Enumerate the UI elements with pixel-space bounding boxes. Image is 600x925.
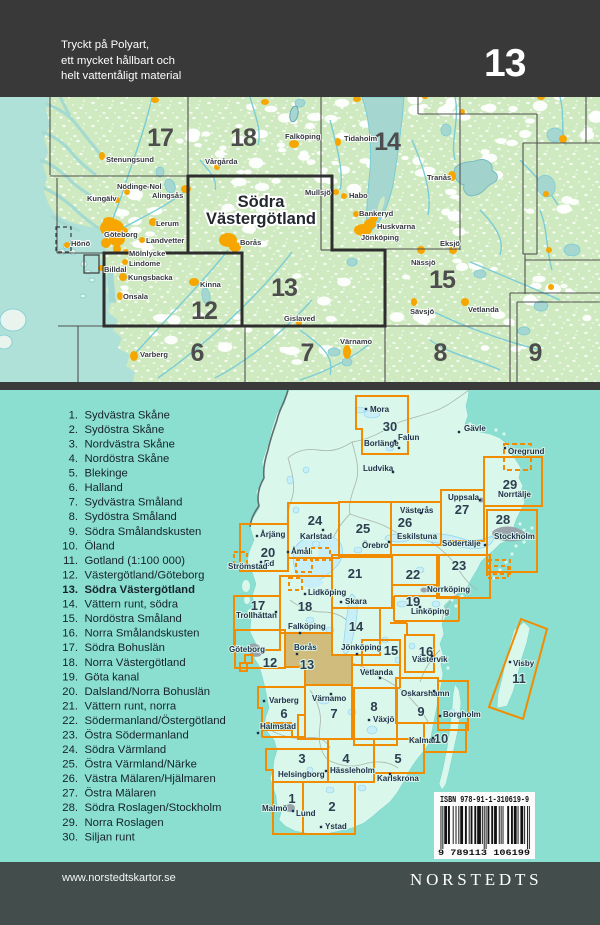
svg-text:9: 9 xyxy=(529,339,542,367)
svg-text:Nordvästra Skåne: Nordvästra Skåne xyxy=(85,439,175,451)
svg-text:Östra Värmland/Närke: Östra Värmland/Närke xyxy=(85,759,197,771)
svg-text:15.: 15. xyxy=(62,613,78,625)
svg-text:Landvetter: Landvetter xyxy=(146,236,184,245)
svg-text:Åmål: Åmål xyxy=(291,547,311,556)
svg-text:Vättern runt, norra: Vättern runt, norra xyxy=(85,700,177,712)
svg-text:Södertälje: Södertälje xyxy=(442,539,481,548)
svg-text:Göteborg: Göteborg xyxy=(229,645,265,654)
svg-text:Falköping: Falköping xyxy=(285,132,321,141)
svg-text:Norrtälje: Norrtälje xyxy=(498,490,531,499)
svg-text:1: 1 xyxy=(288,791,295,806)
svg-text:Eksjö: Eksjö xyxy=(440,239,460,248)
svg-text:Växjö: Växjö xyxy=(373,715,394,724)
svg-text:Hönö: Hönö xyxy=(71,239,91,248)
svg-text:Norra Roslagen: Norra Roslagen xyxy=(85,817,164,829)
svg-text:17: 17 xyxy=(147,124,173,152)
svg-text:Alingsås: Alingsås xyxy=(152,191,183,200)
svg-text:20.: 20. xyxy=(62,686,78,698)
svg-text:27.: 27. xyxy=(62,788,78,800)
svg-text:29.: 29. xyxy=(62,817,78,829)
svg-text:Tranås: Tranås xyxy=(427,173,451,182)
svg-text:Kungsbacka: Kungsbacka xyxy=(128,273,173,282)
svg-text:24: 24 xyxy=(308,513,323,528)
svg-text:Mora: Mora xyxy=(370,405,390,414)
svg-text:Varberg: Varberg xyxy=(269,696,299,705)
svg-text:Gävle: Gävle xyxy=(464,424,486,433)
svg-text:Helsingborg: Helsingborg xyxy=(278,770,325,779)
svg-text:13: 13 xyxy=(271,274,297,302)
svg-text:Östra Mälaren: Östra Mälaren xyxy=(85,788,157,800)
svg-text:Vårgårda: Vårgårda xyxy=(205,157,238,166)
svg-text:Strömstad: Strömstad xyxy=(228,562,268,571)
svg-text:Värnamo: Värnamo xyxy=(312,694,346,703)
svg-text:Jönköping: Jönköping xyxy=(361,233,399,242)
svg-text:11.: 11. xyxy=(63,555,78,567)
svg-text:Nässjö: Nässjö xyxy=(411,258,436,267)
svg-text:Västra Mälaren/Hjälmaren: Västra Mälaren/Hjälmaren xyxy=(85,773,216,785)
svg-text:Södra Västergötland: Södra Västergötland xyxy=(85,584,196,596)
svg-text:6: 6 xyxy=(191,339,204,367)
svg-text:Årjäng: Årjäng xyxy=(260,530,285,539)
svg-text:21: 21 xyxy=(348,566,362,581)
svg-text:Mölnlycke: Mölnlycke xyxy=(129,249,165,258)
svg-text:7: 7 xyxy=(330,706,337,721)
svg-text:Sydvästra Skåne: Sydvästra Skåne xyxy=(85,409,170,421)
svg-text:Sydöstra Småland: Sydöstra Småland xyxy=(85,511,177,523)
svg-text:27: 27 xyxy=(455,502,469,517)
svg-text:Oskarshamn: Oskarshamn xyxy=(401,689,450,698)
svg-text:Uppsala: Uppsala xyxy=(448,493,480,502)
svg-text:Karlskrona: Karlskrona xyxy=(377,774,419,783)
svg-text:Norra Smålandskusten: Norra Smålandskusten xyxy=(85,628,200,640)
svg-text:Göteborg: Göteborg xyxy=(104,230,138,239)
svg-text:8: 8 xyxy=(434,339,448,367)
svg-text:Västergötland/Göteborg: Västergötland/Göteborg xyxy=(85,570,205,582)
svg-text:11: 11 xyxy=(512,671,526,686)
svg-text:Halland: Halland xyxy=(85,482,123,494)
svg-text:12: 12 xyxy=(263,655,277,670)
svg-text:3.: 3. xyxy=(69,439,78,451)
svg-text:Kinna: Kinna xyxy=(200,280,222,289)
svg-text:Vetlanda: Vetlanda xyxy=(468,305,500,314)
svg-text:5.: 5. xyxy=(69,468,78,480)
svg-text:Malmö: Malmö xyxy=(262,804,287,813)
svg-text:Lund: Lund xyxy=(296,809,316,818)
svg-text:Sydöstra Skåne: Sydöstra Skåne xyxy=(85,424,165,436)
svg-text:Karlstad: Karlstad xyxy=(300,532,332,541)
svg-text:Varberg: Varberg xyxy=(140,350,168,359)
svg-text:9 789113 106199: 9 789113 106199 xyxy=(438,848,530,858)
svg-text:Skara: Skara xyxy=(345,597,367,606)
svg-text:6.: 6. xyxy=(69,482,78,494)
svg-text:Bankeryd: Bankeryd xyxy=(359,209,394,218)
svg-text:ISBN 978-91-1-310619-9: ISBN 978-91-1-310619-9 xyxy=(440,795,529,805)
svg-text:6: 6 xyxy=(280,706,287,721)
svg-text:Ludvika: Ludvika xyxy=(363,464,394,473)
svg-text:Örebro: Örebro xyxy=(362,541,389,550)
svg-text:Trollhättan: Trollhättan xyxy=(236,611,277,620)
svg-text:Västervik: Västervik xyxy=(412,655,448,664)
svg-text:12: 12 xyxy=(191,297,217,325)
svg-text:23.: 23. xyxy=(62,730,78,742)
svg-text:13: 13 xyxy=(300,657,314,672)
svg-text:2: 2 xyxy=(328,799,335,814)
svg-text:Eskilstuna: Eskilstuna xyxy=(397,532,438,541)
svg-text:24.: 24. xyxy=(62,744,78,756)
svg-text:Norra Västergötland: Norra Västergötland xyxy=(85,657,186,669)
svg-text:Falun: Falun xyxy=(398,433,419,442)
svg-text:15: 15 xyxy=(429,266,456,294)
svg-text:Södra Smålandskusten: Södra Smålandskusten xyxy=(85,526,202,538)
svg-text:28.: 28. xyxy=(62,802,78,814)
svg-text:Nordöstra Småland: Nordöstra Småland xyxy=(85,613,182,625)
svg-text:Södra Bohuslän: Södra Bohuslän xyxy=(85,642,165,654)
svg-text:Östra Södermanland: Östra Södermanland xyxy=(85,730,189,742)
svg-text:Södermanland/Östergötland: Södermanland/Östergötland xyxy=(85,715,226,727)
svg-text:Lindome: Lindome xyxy=(129,259,160,268)
svg-text:25: 25 xyxy=(356,521,370,536)
svg-text:8.: 8. xyxy=(69,511,78,523)
svg-text:28: 28 xyxy=(496,512,510,527)
svg-text:2.: 2. xyxy=(69,424,78,436)
svg-text:26: 26 xyxy=(398,515,412,530)
svg-text:Öregrund: Öregrund xyxy=(508,447,545,456)
svg-text:Södra Värmland: Södra Värmland xyxy=(85,744,167,756)
svg-text:18: 18 xyxy=(230,124,257,152)
svg-text:15: 15 xyxy=(384,643,398,658)
svg-text:21.: 21. xyxy=(62,700,78,712)
svg-text:Nordöstra Skåne: Nordöstra Skåne xyxy=(85,453,170,465)
svg-text:Linköping: Linköping xyxy=(411,607,449,616)
svg-text:Borgholm: Borgholm xyxy=(443,710,481,719)
svg-text:4.: 4. xyxy=(69,453,78,465)
svg-text:Siljan runt: Siljan runt xyxy=(85,831,136,843)
svg-text:Göta kanal: Göta kanal xyxy=(85,671,140,683)
svg-text:Borås: Borås xyxy=(294,643,317,652)
svg-text:Sävsjö: Sävsjö xyxy=(410,307,435,316)
svg-text:12.: 12. xyxy=(62,570,78,582)
svg-text:7: 7 xyxy=(301,339,314,367)
svg-text:Öland: Öland xyxy=(85,540,115,552)
svg-text:25.: 25. xyxy=(62,759,78,771)
svg-text:20: 20 xyxy=(261,545,275,560)
svg-text:Västergötland: Västergötland xyxy=(206,210,316,228)
svg-text:Sydvästra Småland: Sydvästra Småland xyxy=(85,497,183,509)
svg-text:Lerum: Lerum xyxy=(156,219,179,228)
svg-text:Tidaholm: Tidaholm xyxy=(344,134,378,143)
svg-text:Halmstad: Halmstad xyxy=(260,722,296,731)
svg-text:Huskvarna: Huskvarna xyxy=(377,222,416,231)
svg-text:Visby: Visby xyxy=(513,659,535,668)
svg-text:Ystad: Ystad xyxy=(325,822,347,831)
svg-text:16.: 16. xyxy=(62,628,78,640)
svg-text:19.: 19. xyxy=(62,671,78,683)
svg-text:18.: 18. xyxy=(62,657,78,669)
svg-text:Västerås: Västerås xyxy=(400,506,434,515)
svg-text:Dalsland/Norra Bohuslän: Dalsland/Norra Bohuslän xyxy=(85,686,211,698)
svg-text:Billdal: Billdal xyxy=(104,265,127,274)
svg-text:Gislaved: Gislaved xyxy=(284,314,316,323)
svg-text:Blekinge: Blekinge xyxy=(85,468,128,480)
svg-text:Borås: Borås xyxy=(240,238,261,247)
svg-text:Värnamo: Värnamo xyxy=(340,337,373,346)
svg-text:13.: 13. xyxy=(62,584,78,596)
svg-text:23: 23 xyxy=(452,558,466,573)
svg-text:Lidköping: Lidköping xyxy=(308,588,346,597)
svg-text:Jönköping: Jönköping xyxy=(341,643,382,652)
svg-text:10.: 10. xyxy=(62,540,78,552)
svg-text:Falköping: Falköping xyxy=(288,622,326,631)
svg-text:30: 30 xyxy=(383,419,397,434)
svg-text:Vättern runt, södra: Vättern runt, södra xyxy=(85,599,179,611)
svg-text:Vetlanda: Vetlanda xyxy=(360,668,393,677)
svg-text:Gotland (1:100 000): Gotland (1:100 000) xyxy=(85,555,186,567)
svg-text:9.: 9. xyxy=(69,526,78,538)
svg-text:Onsala: Onsala xyxy=(123,292,149,301)
svg-text:14.: 14. xyxy=(62,599,78,611)
svg-text:Habo: Habo xyxy=(349,191,368,200)
svg-text:22: 22 xyxy=(406,567,420,582)
svg-text:5: 5 xyxy=(394,751,401,766)
svg-text:3: 3 xyxy=(298,751,305,766)
svg-text:Hässleholm: Hässleholm xyxy=(330,766,375,775)
svg-text:30.: 30. xyxy=(62,831,78,843)
svg-text:Mullsjö: Mullsjö xyxy=(305,188,331,197)
svg-text:7.: 7. xyxy=(69,497,78,509)
svg-text:Kungälv: Kungälv xyxy=(87,194,117,203)
svg-text:Stockholm: Stockholm xyxy=(494,532,535,541)
svg-text:22.: 22. xyxy=(62,715,78,727)
svg-text:Norrköping: Norrköping xyxy=(427,585,470,594)
svg-text:Södra: Södra xyxy=(238,193,286,211)
svg-text:Nödinge-Nol: Nödinge-Nol xyxy=(117,182,162,191)
svg-text:8: 8 xyxy=(370,699,377,714)
svg-text:9: 9 xyxy=(417,704,424,719)
svg-text:1.: 1. xyxy=(69,409,78,421)
svg-text:26.: 26. xyxy=(62,773,78,785)
svg-text:17.: 17. xyxy=(62,642,78,654)
svg-text:14: 14 xyxy=(374,128,401,156)
svg-text:Stenungsund: Stenungsund xyxy=(106,155,154,164)
svg-text:4: 4 xyxy=(342,751,350,766)
svg-text:Södra Roslagen/Stockholm: Södra Roslagen/Stockholm xyxy=(85,802,222,814)
svg-text:14: 14 xyxy=(349,619,364,634)
svg-text:18: 18 xyxy=(298,599,312,614)
